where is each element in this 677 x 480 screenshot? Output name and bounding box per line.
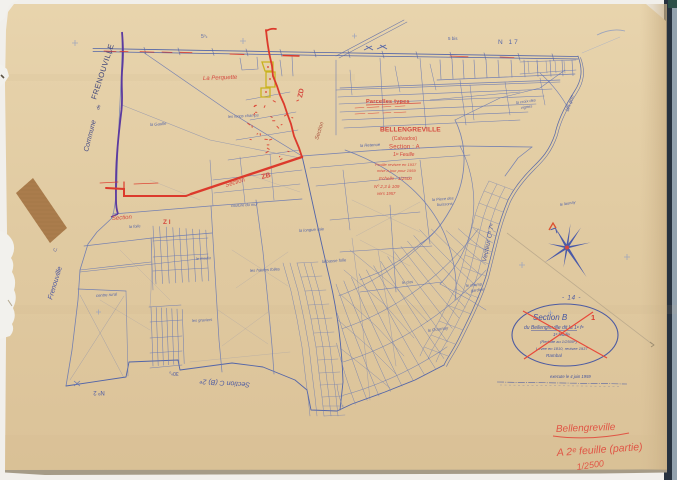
svg-text:Bellengreville: Bellengreville <box>556 422 616 435</box>
svg-text:la folle: la folle <box>129 223 142 229</box>
svg-text:5 bis: 5 bis <box>448 36 458 41</box>
svg-text:(Reduite au 1/2500ᵉ): (Reduite au 1/2500ᵉ) <box>540 339 578 344</box>
svg-text:le clos: le clos <box>402 279 414 285</box>
svg-text:Rambal: Rambal <box>546 353 563 358</box>
svg-text:Nº 2: Nº 2 <box>93 389 105 396</box>
svg-text:Section : A: Section : A <box>389 145 420 151</box>
svg-text:La Perquette: La Perquette <box>203 75 238 82</box>
svg-text:Feuille revisee en 1937: Feuille revisee en 1937 <box>375 162 417 167</box>
svg-text:- 14 -: - 14 - <box>562 295 581 302</box>
svg-text:5ºₖ: 5ºₖ <box>201 34 208 40</box>
svg-text:1ʲᵉ Feuille: 1ʲᵉ Feuille <box>393 152 415 158</box>
svg-text:Section B: Section B <box>533 313 568 322</box>
svg-text:BELLENGREVILLE: BELLENGREVILLE <box>380 127 441 134</box>
svg-text:mise a jour pour 1959: mise a jour pour 1959 <box>377 168 416 173</box>
svg-text:vers 1957: vers 1957 <box>377 191 396 196</box>
svg-text:1: 1 <box>591 313 595 322</box>
svg-text:N 17: N 17 <box>498 39 520 46</box>
svg-text:Z I: Z I <box>163 219 171 226</box>
svg-text:Levee en 1810, revisee 1937: Levee en 1810, revisee 1937 <box>536 346 588 351</box>
svg-text:(Calvados): (Calvados) <box>392 136 417 142</box>
svg-text:30ºₒ: 30ºₒ <box>169 370 178 376</box>
svg-text:le moulin: le moulin <box>196 256 211 261</box>
svg-text:Echelle : 1/2500: Echelle : 1/2500 <box>379 176 412 181</box>
svg-text:execute le 4 juin 1959: execute le 4 juin 1959 <box>550 374 591 379</box>
svg-text:les graviers: les graviers <box>192 317 213 323</box>
svg-text:Nº 2,3 à 109: Nº 2,3 à 109 <box>374 184 400 189</box>
